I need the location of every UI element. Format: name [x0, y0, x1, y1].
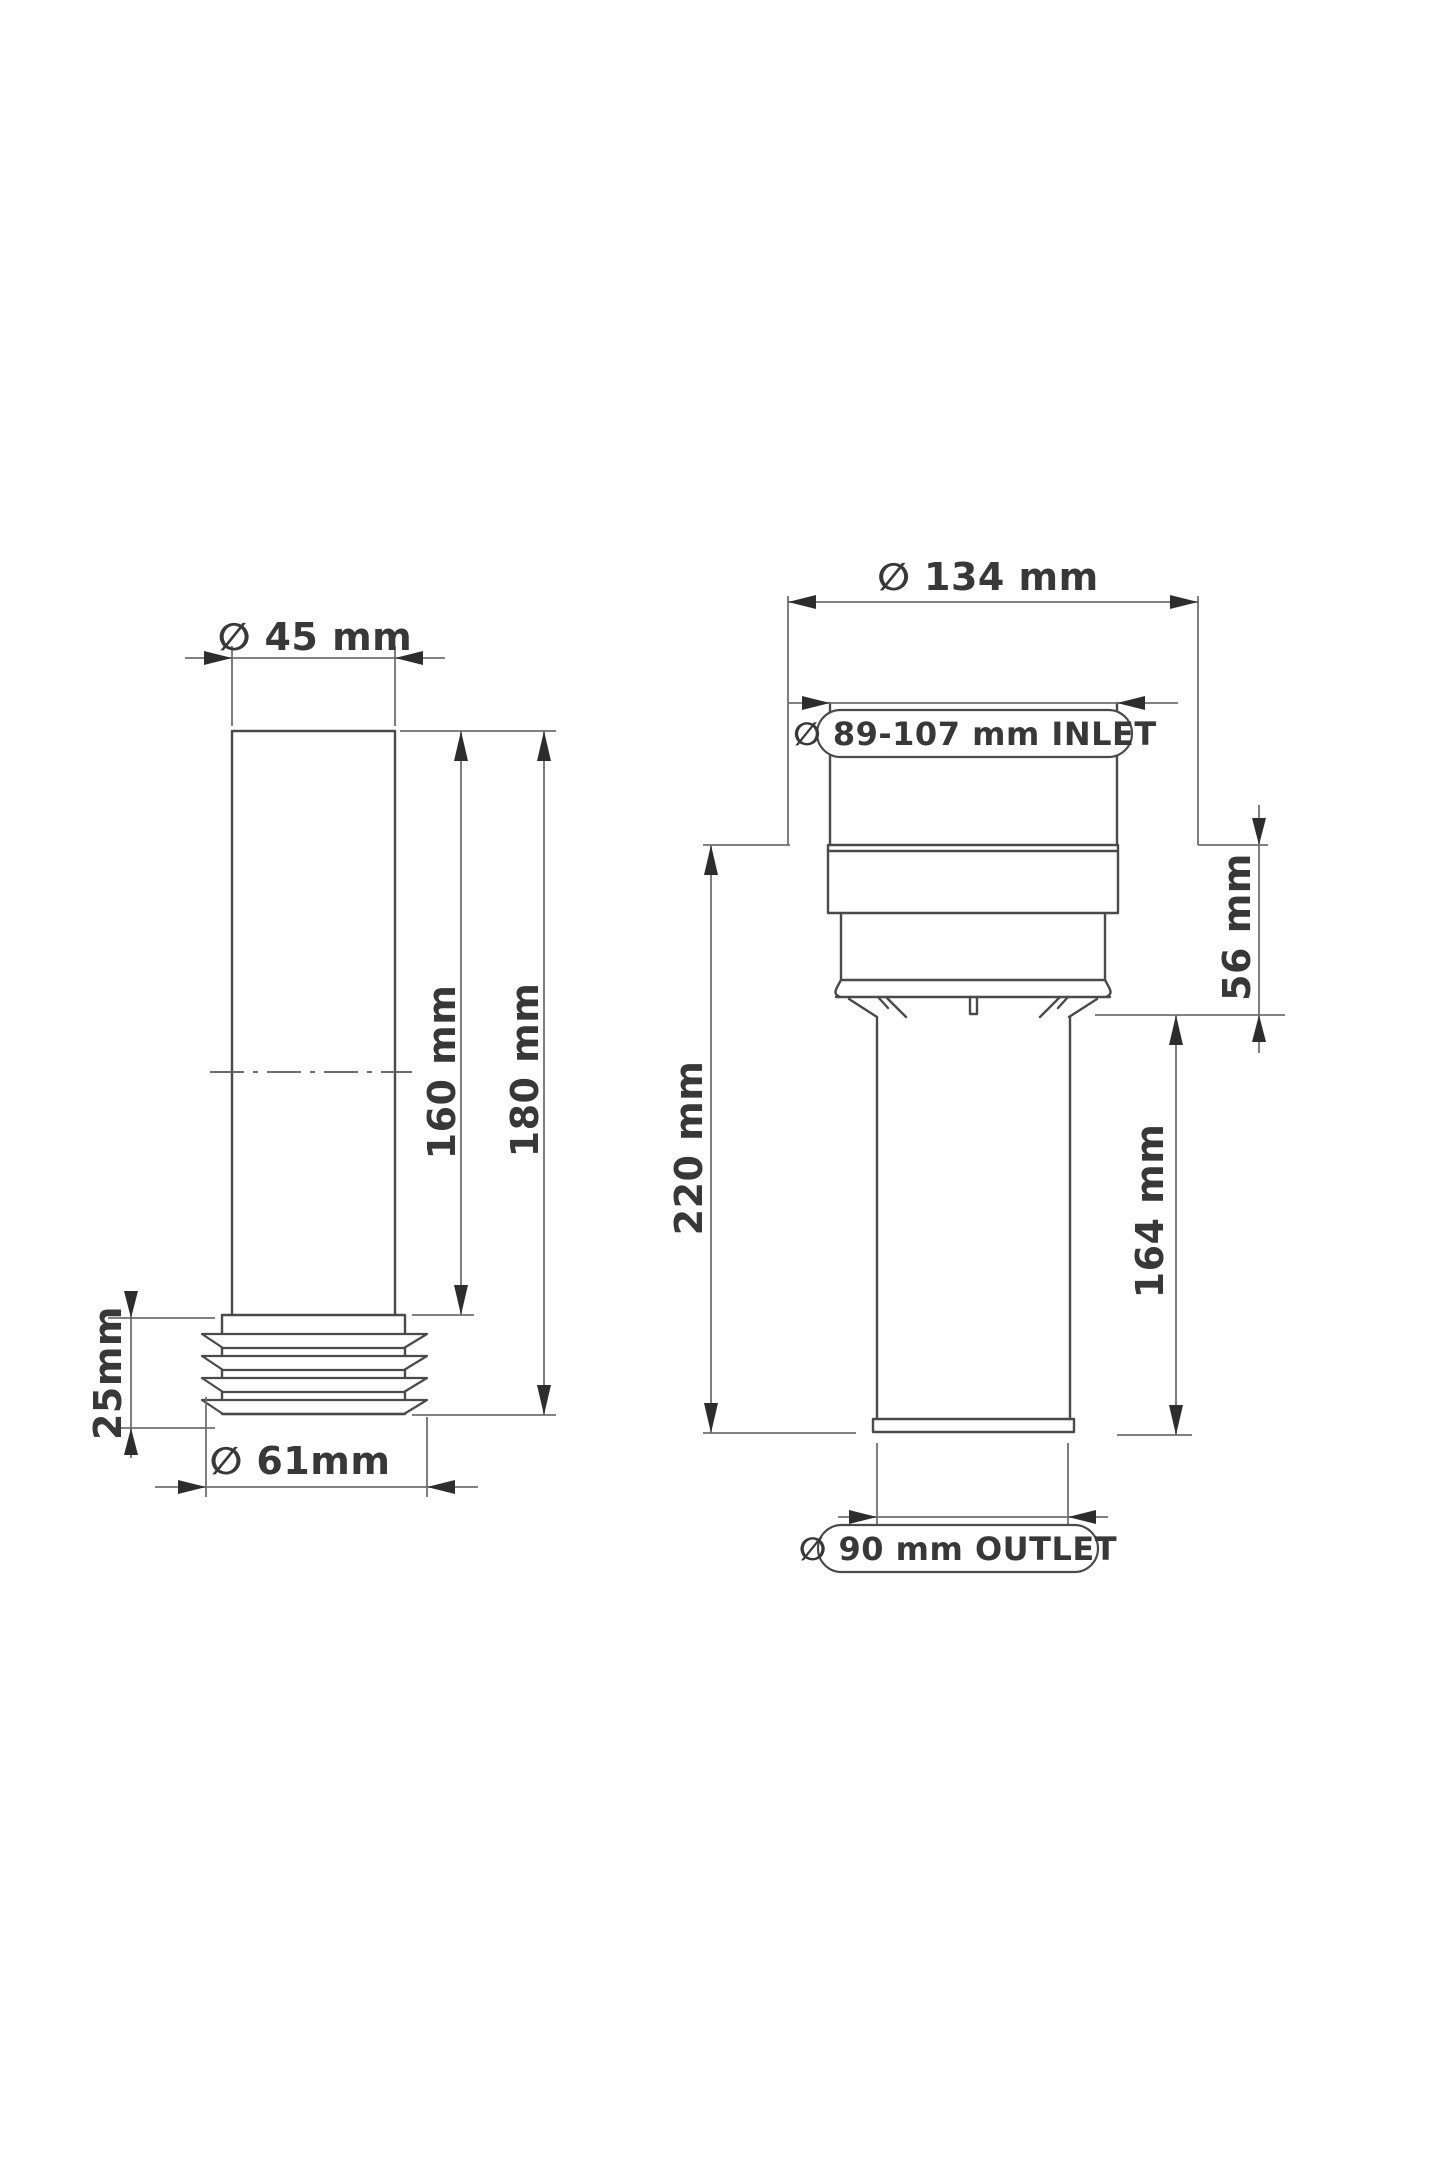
gasket-fin [202, 1400, 427, 1414]
label-outlet-length: 164 mm [1128, 1124, 1172, 1299]
socket-skirt [835, 980, 1110, 1017]
label-overall-length: 180 mm [503, 983, 547, 1158]
label-flange-diameter: ∅ 134 mm [877, 555, 1099, 599]
outlet-tube [877, 1017, 1070, 1419]
dim-overall-height [703, 845, 856, 1433]
label-inlet: ∅ 89-107 mm INLET [793, 715, 1156, 753]
label-gasket-diameter: ∅ 61mm [210, 1439, 391, 1483]
outlet-lip [873, 1419, 1074, 1432]
dim-inlet-diameter [788, 696, 1178, 710]
gasket-fin [202, 1378, 427, 1392]
label-pipe-length: 160 mm [420, 985, 464, 1160]
technical-drawing-page: ∅ 45 mm 160 mm 180 mm 25mm ∅ 61mm ∅ 134 … [0, 0, 1440, 2160]
left-view-outline [202, 731, 427, 1414]
socket-lower-band [841, 913, 1105, 980]
label-gasket-height: 25mm [86, 1306, 130, 1440]
label-outlet: ∅ 90 mm OUTLET [799, 1530, 1117, 1568]
dimension-drawing: ∅ 45 mm 160 mm 180 mm 25mm ∅ 61mm ∅ 134 … [0, 0, 1440, 2160]
labels: ∅ 45 mm 160 mm 180 mm 25mm ∅ 61mm ∅ 134 … [86, 555, 1259, 1568]
label-top-diameter: ∅ 45 mm [218, 615, 413, 659]
label-overall-height: 220 mm [667, 1061, 711, 1236]
label-socket-height: 56 mm [1215, 853, 1259, 1001]
gasket-rim [222, 1315, 405, 1334]
right-view-outline [828, 703, 1118, 1432]
grip-claws [878, 997, 1068, 1017]
dim-outlet-diameter [838, 1443, 1108, 1528]
gasket-fin [202, 1334, 427, 1348]
pipe-body [232, 731, 395, 1315]
socket-upper-band [828, 845, 1118, 913]
gasket-fin [202, 1356, 427, 1370]
